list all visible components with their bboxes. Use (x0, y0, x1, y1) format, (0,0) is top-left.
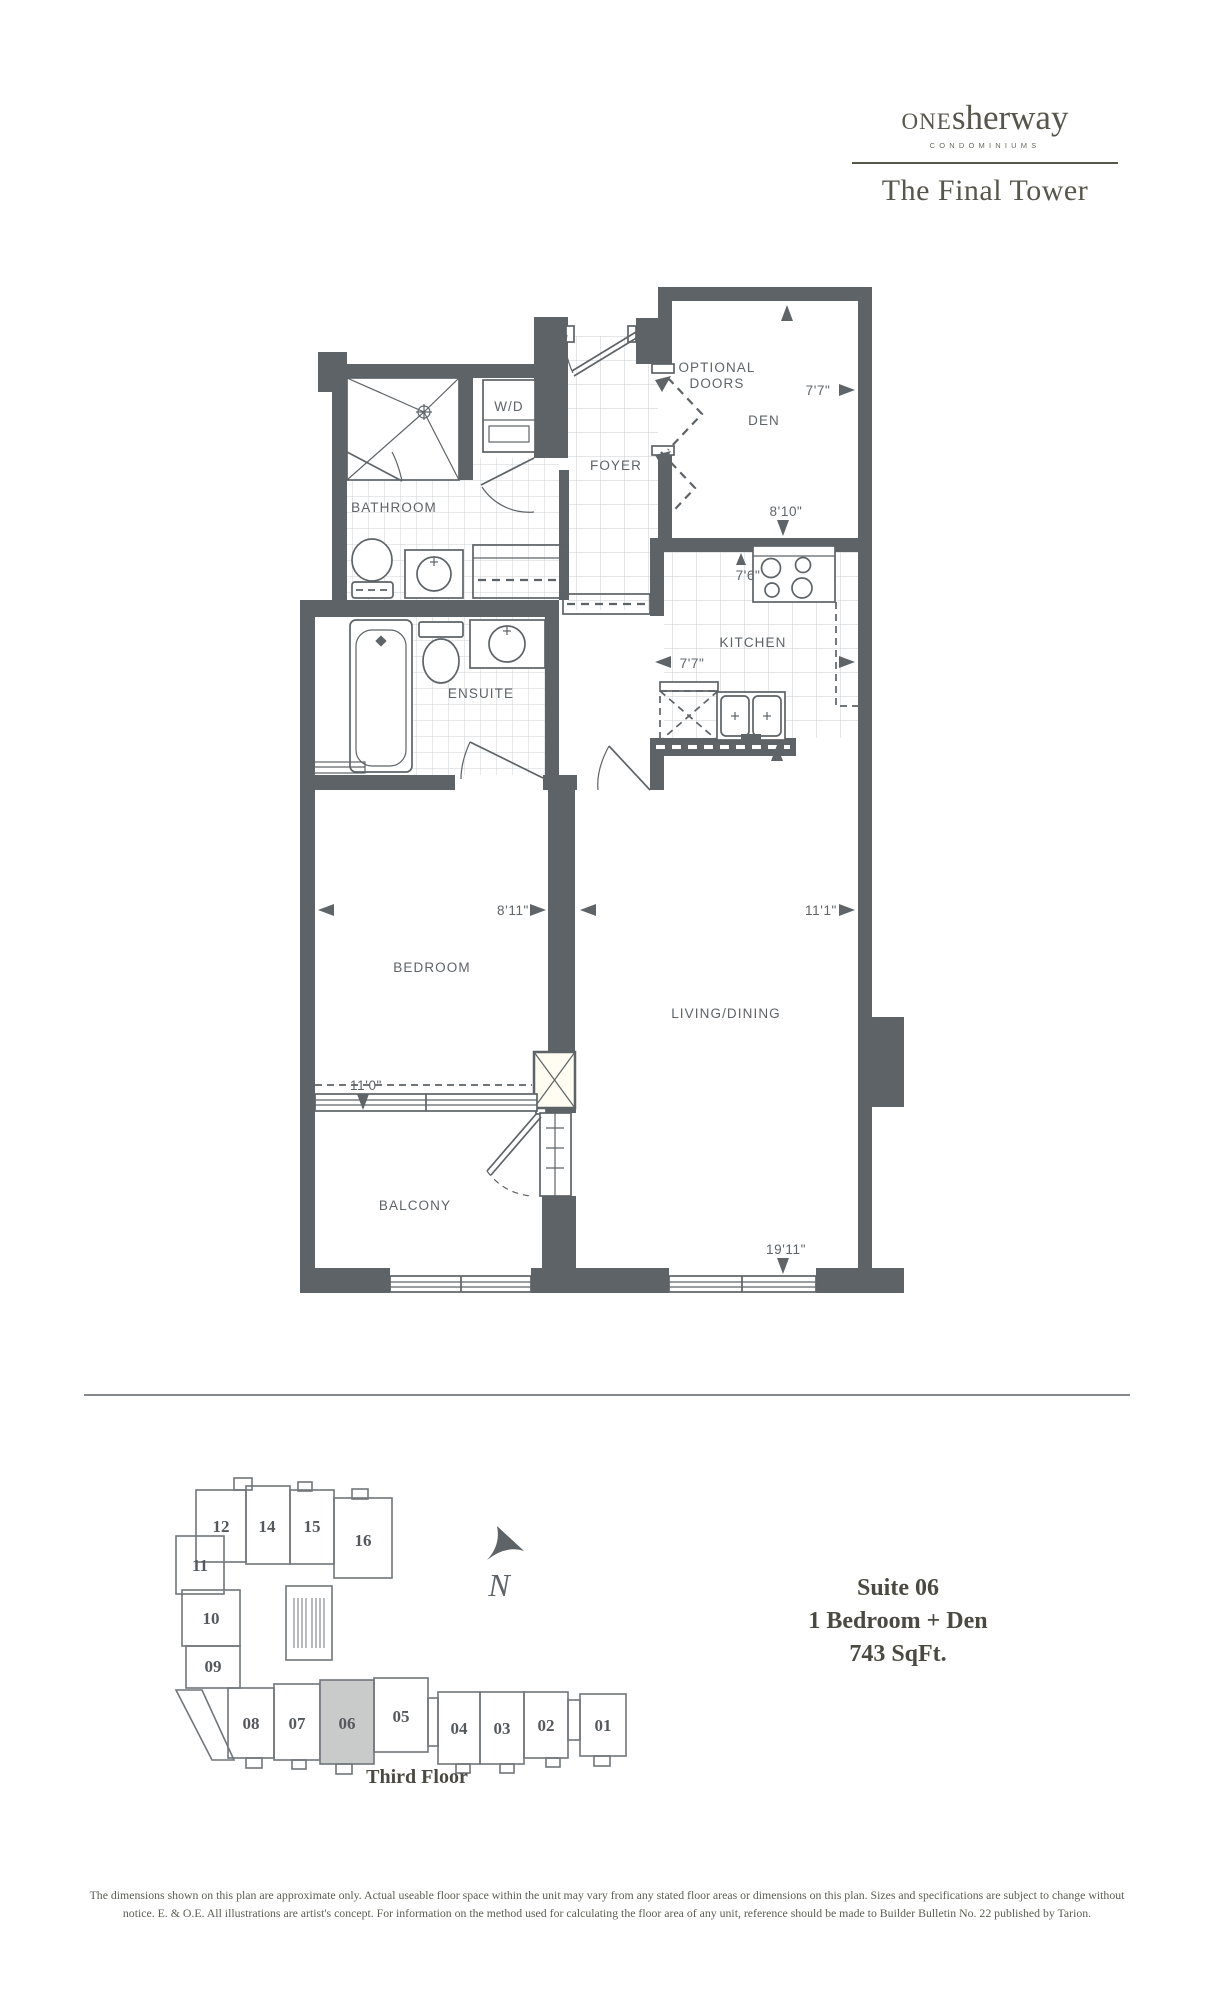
suite-area: 743 SqFt. (768, 1638, 1028, 1671)
balcony-window (390, 1276, 531, 1292)
label-bedroom: BEDROOM (393, 960, 470, 975)
dim-kitchen-depth: 7'6" (736, 568, 761, 583)
balcony-door (487, 1113, 571, 1196)
keyplan-label-15: 15 (304, 1517, 321, 1536)
keyplan-corridor-2 (568, 1700, 580, 1740)
label-foyer: FOYER (590, 458, 642, 473)
keyplan-label-14: 14 (259, 1517, 277, 1536)
keyplan-label-05: 05 (393, 1707, 410, 1726)
suite-name: Suite 06 (768, 1572, 1028, 1605)
suite-info: Suite 06 1 Bedroom + Den 743 SqFt. (768, 1572, 1028, 1671)
north-arrow-icon: N (487, 1526, 524, 1603)
keyplan-label-06: 06 (339, 1714, 356, 1733)
bedroom-window (315, 1085, 537, 1111)
keyplan-label-08: 08 (243, 1714, 260, 1733)
keyplan-label-04: 04 (451, 1719, 469, 1738)
label-den: DEN (748, 413, 780, 428)
label-living-dining: LIVING/DINING (671, 1006, 781, 1021)
ensuite-tub (350, 620, 412, 772)
keyplan-label-09: 09 (205, 1657, 222, 1676)
dim-den-width: 7'7" (806, 383, 831, 398)
shower (347, 378, 459, 480)
keyplan-label-07: 07 (289, 1714, 307, 1733)
bathroom-sink (405, 550, 463, 598)
bedroom-door (598, 746, 650, 790)
keyplan-label-10: 10 (203, 1609, 220, 1628)
dim-bedroom-width: 8'11" (497, 903, 529, 918)
keyplan-corridor-1 (428, 1698, 438, 1746)
north-label: N (487, 1567, 511, 1603)
label-bathroom: BATHROOM (351, 500, 437, 515)
key-plan: 12 14 15 16 11 10 09 08 07 06 05 04 03 0… (176, 1478, 626, 1774)
column (534, 1052, 575, 1108)
keyplan-label-01: 01 (595, 1716, 612, 1735)
disclaimer-text: The dimensions shown on this plan are ap… (85, 1886, 1129, 1923)
label-balcony: BALCONY (379, 1198, 451, 1213)
floor-level-label: Third Floor (322, 1766, 512, 1789)
floorplan-page: ONEsherway CONDOMINIUMS The Final Tower (0, 0, 1214, 2000)
keyplan-label-12: 12 (213, 1517, 230, 1536)
label-ensuite: ENSUITE (448, 686, 514, 701)
label-optional-1: OPTIONAL (678, 360, 755, 375)
kitchen-sink (717, 692, 785, 744)
suite-type: 1 Bedroom + Den (768, 1605, 1028, 1638)
floor-plan: BATHROOM W/D FOYER OPTIONAL DOORS DEN KI… (300, 287, 904, 1293)
keyplan-label-11: 11 (192, 1556, 208, 1575)
label-kitchen: KITCHEN (720, 635, 787, 650)
dim-living-depth: 19'11" (766, 1242, 806, 1257)
keyplan-label-03: 03 (494, 1719, 511, 1738)
dim-living-width: 11'1" (805, 903, 837, 918)
keyplan-label-16: 16 (355, 1531, 372, 1550)
ensuite-toilet (419, 622, 463, 683)
bathroom-toilet (352, 539, 393, 598)
plan-canvas: BATHROOM W/D FOYER OPTIONAL DOORS DEN KI… (0, 0, 1214, 2000)
keyplan-tail (176, 1690, 234, 1760)
section-divider (84, 1394, 1130, 1396)
ensuite-sink (470, 620, 545, 668)
dim-kitchen-width: 7'7" (680, 656, 705, 671)
label-optional-2: DOORS (689, 376, 744, 391)
living-window (669, 1276, 816, 1292)
stove (753, 546, 835, 602)
label-wd: W/D (494, 399, 524, 414)
keyplan-core (286, 1586, 332, 1660)
dim-den-depth: 8'10" (770, 504, 803, 519)
dim-bedroom-depth: 11'0" (350, 1078, 382, 1093)
keyplan-label-02: 02 (538, 1716, 555, 1735)
